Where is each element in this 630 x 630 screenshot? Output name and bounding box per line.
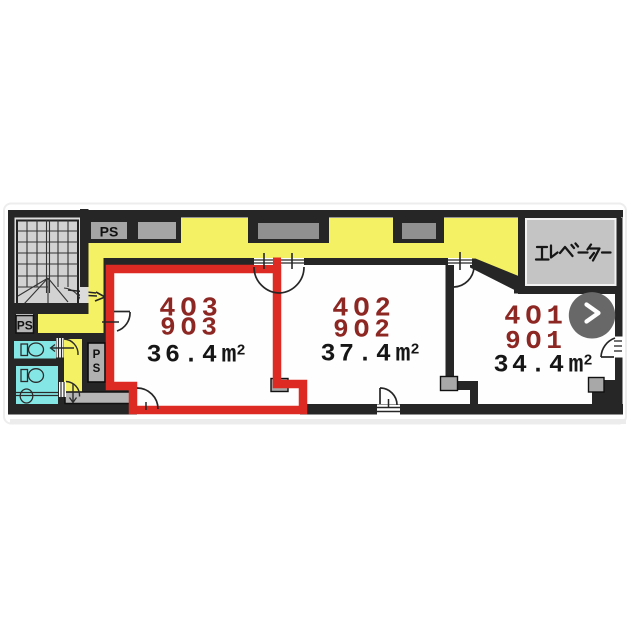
svg-text:PS: PS — [100, 224, 119, 240]
svg-text:S: S — [93, 363, 101, 375]
svg-text:34.4m2: 34.4m2 — [493, 351, 592, 380]
svg-text:36.4m2: 36.4m2 — [146, 341, 245, 370]
svg-text:9O3: 9O3 — [160, 313, 222, 343]
svg-text:37.4m2: 37.4m2 — [320, 340, 419, 369]
svg-text:P: P — [93, 349, 101, 361]
svg-text:PS: PS — [17, 319, 33, 333]
